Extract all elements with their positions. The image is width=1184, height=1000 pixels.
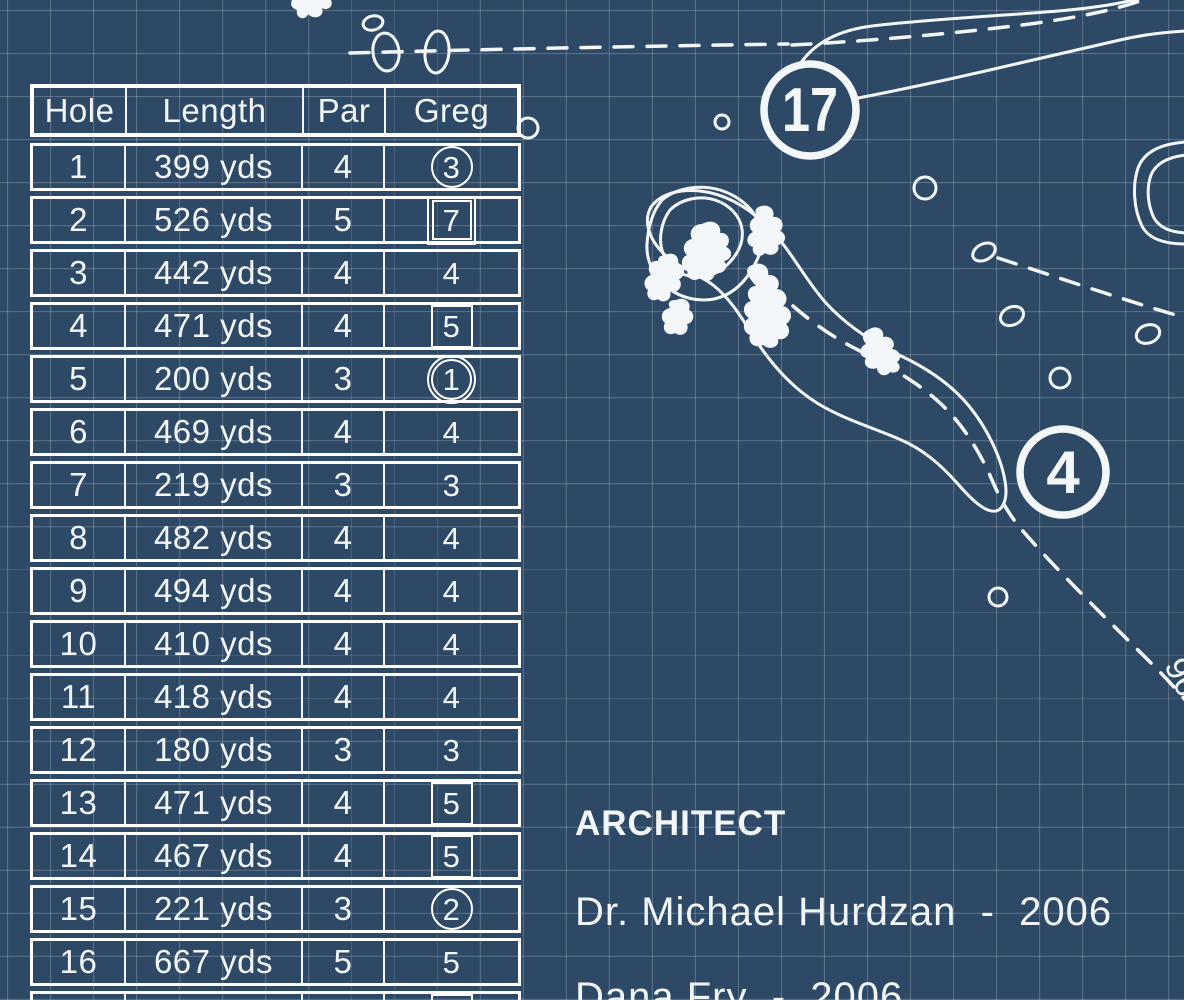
- table-row: 5 200 yds 3 1: [30, 355, 521, 403]
- mound: [518, 118, 538, 138]
- hole-par: 4: [301, 517, 383, 559]
- header-player: Greg: [384, 88, 517, 133]
- player-score-cell: [383, 994, 518, 1000]
- scorecard-table: Hole Length Par Greg 1 399 yds 4 3 2 526…: [30, 84, 521, 1000]
- bunker: [682, 222, 731, 281]
- table-row: 10 410 yds 4 4: [30, 620, 521, 668]
- header-par: Par: [302, 88, 384, 133]
- score-value: 4: [443, 629, 461, 660]
- header-hole: Hole: [34, 88, 125, 133]
- hole-length: 471 yds: [124, 305, 301, 347]
- table-row: 13 471 yds 4 5: [30, 779, 521, 827]
- table-row: 12 180 yds 3 3: [30, 726, 521, 774]
- hole-17-badge-label: 17: [782, 76, 838, 145]
- tee-line-17: [350, 44, 788, 53]
- hole-length: 667 yds: [124, 941, 301, 983]
- score-value: 3: [443, 470, 461, 501]
- blueprint-poster: 17 4 96 Hole Leng: [0, 0, 1184, 1000]
- score-mark: 4: [433, 571, 471, 611]
- score-value: 5: [443, 841, 461, 872]
- bunker: [662, 299, 694, 335]
- hole-number: 11: [33, 676, 124, 718]
- hole-par: 5: [301, 199, 383, 241]
- table-row: 2 526 yds 5 7: [30, 196, 521, 244]
- bunker: [744, 264, 791, 348]
- hole-par: 4: [301, 305, 383, 347]
- table-row: 9 494 yds 4 4: [30, 567, 521, 615]
- score-mark: 5: [433, 942, 471, 982]
- score-mark: 3: [431, 146, 473, 188]
- hole-number: 10: [33, 623, 124, 665]
- tee-mound: [362, 14, 385, 32]
- hole-length: 221 yds: [124, 888, 301, 930]
- hole-length: 418 yds: [124, 676, 301, 718]
- hole-length: 219 yds: [124, 464, 301, 506]
- yardage-label: 96: [1157, 652, 1184, 703]
- hole-par: 4: [301, 835, 383, 877]
- player-score-cell: 4: [383, 252, 518, 294]
- tee-box: [997, 303, 1026, 329]
- hole-length: 471 yds: [124, 782, 301, 824]
- hole-number: 3: [33, 252, 124, 294]
- architect-line: Dana Fry - 2006: [575, 973, 1112, 1000]
- header-length: Length: [125, 88, 302, 133]
- score-mark: 4: [433, 677, 471, 717]
- hole-length: 482 yds: [124, 517, 301, 559]
- score-value: 4: [443, 576, 461, 607]
- score-mark: 7: [427, 196, 476, 245]
- green-outline: [1148, 155, 1184, 233]
- score-mark: 2: [431, 888, 473, 930]
- score-value: 5: [443, 311, 461, 342]
- hole-length: 200 yds: [124, 358, 301, 400]
- score-mark: 3: [433, 730, 471, 770]
- table-row: 1 399 yds 4 3: [30, 143, 521, 191]
- hole-length: 410 yds: [124, 623, 301, 665]
- hole-par: 4: [301, 252, 383, 294]
- score-mark: 4: [433, 412, 471, 452]
- hole-number: 7: [33, 464, 124, 506]
- player-score-cell: 1: [383, 358, 518, 400]
- hole-par: 4: [301, 676, 383, 718]
- score-value: 4: [443, 682, 461, 713]
- player-score-cell: 2: [383, 888, 518, 930]
- tee-line: [998, 258, 1184, 318]
- tee-box: [970, 239, 999, 264]
- hole-number: 15: [33, 888, 124, 930]
- score-value: 3: [443, 735, 461, 766]
- player-score-cell: 3: [383, 729, 518, 771]
- table-row: 14 467 yds 4 5: [30, 832, 521, 880]
- hole-par: 5: [301, 941, 383, 983]
- table-header-row: Hole Length Par Greg: [30, 84, 521, 137]
- hole-par: [301, 994, 383, 1000]
- hole-number: 5: [33, 358, 124, 400]
- hole-number: 13: [33, 782, 124, 824]
- table-row: 15 221 yds 3 2: [30, 885, 521, 933]
- architect-heading: ARCHITECT: [575, 804, 1112, 844]
- table-row: 16 667 yds 5 5: [30, 938, 521, 986]
- hole-4-badge-label: 4: [1046, 439, 1080, 506]
- hole-par: 3: [301, 888, 383, 930]
- player-score-cell: 4: [383, 676, 518, 718]
- hole-number: [33, 994, 124, 1000]
- table-row: 3 442 yds 4 4: [30, 249, 521, 297]
- player-score-cell: 4: [383, 623, 518, 665]
- hole-length: 180 yds: [124, 729, 301, 771]
- tee-box: [1134, 321, 1163, 346]
- hole-number: 4: [33, 305, 124, 347]
- architect-line: Dr. Michael Hurdzan - 2006: [575, 888, 1112, 937]
- score-value: 2: [443, 894, 461, 925]
- score-mark: 5: [431, 305, 473, 348]
- player-score-cell: 4: [383, 570, 518, 612]
- score-value: 4: [443, 258, 461, 289]
- score-value: 4: [443, 523, 461, 554]
- score-mark: 3: [433, 465, 471, 505]
- center-line-4: [793, 306, 1184, 701]
- score-value: 4: [443, 417, 461, 448]
- hole-number: 2: [33, 199, 124, 241]
- hole-length: [124, 994, 301, 1000]
- hole-length: 467 yds: [124, 835, 301, 877]
- hole-number: 6: [33, 411, 124, 453]
- score-value: 5: [443, 947, 461, 978]
- hole-number: 1: [33, 146, 124, 188]
- hole-length: 399 yds: [124, 146, 301, 188]
- score-mark: 4: [433, 624, 471, 664]
- player-score-cell: 4: [383, 411, 518, 453]
- player-score-cell: 5: [383, 305, 518, 347]
- hole-number: 8: [33, 517, 124, 559]
- player-score-cell: 3: [383, 464, 518, 506]
- hole-length: 469 yds: [124, 411, 301, 453]
- hole-par: 3: [301, 729, 383, 771]
- score-value: 1: [443, 364, 461, 395]
- score-mark: 5: [431, 782, 473, 825]
- player-score-cell: 5: [383, 941, 518, 983]
- hole-par: 4: [301, 570, 383, 612]
- table-row: 8 482 yds 4 4: [30, 514, 521, 562]
- table-row: 4 471 yds 4 5: [30, 302, 521, 350]
- score-value: 3: [443, 152, 461, 183]
- player-score-cell: 5: [383, 835, 518, 877]
- hole-number: 12: [33, 729, 124, 771]
- table-row: 6 469 yds 4 4: [30, 408, 521, 456]
- score-mark: 5: [431, 835, 473, 878]
- hole-par: 4: [301, 146, 383, 188]
- hole-length: 526 yds: [124, 199, 301, 241]
- mound: [989, 588, 1007, 606]
- player-score-cell: 4: [383, 517, 518, 559]
- hole-par: 4: [301, 782, 383, 824]
- table-row: [30, 991, 521, 1000]
- player-score-cell: 7: [383, 199, 518, 241]
- bunker: [291, 0, 332, 18]
- upper-fairway-outline: [853, 31, 1184, 99]
- bunker: [860, 327, 900, 375]
- score-mark: 4: [433, 253, 471, 293]
- hole-number: 16: [33, 941, 124, 983]
- hole-par: 4: [301, 411, 383, 453]
- player-score-cell: 3: [383, 146, 518, 188]
- hole-number: 14: [33, 835, 124, 877]
- hole-length: 494 yds: [124, 570, 301, 612]
- score-mark: 1: [427, 355, 476, 404]
- mound: [914, 177, 936, 199]
- mound: [1050, 368, 1070, 388]
- architect-block: ARCHITECT Dr. Michael Hurdzan - 2006 Dan…: [575, 768, 1112, 1000]
- hole-number: 9: [33, 570, 124, 612]
- table-row: 7 219 yds 3 3: [30, 461, 521, 509]
- score-value: 7: [443, 205, 461, 236]
- mound: [715, 115, 729, 129]
- score-mark: 4: [433, 518, 471, 558]
- hole-par: 4: [301, 623, 383, 665]
- player-score-cell: 5: [383, 782, 518, 824]
- hole-par: 3: [301, 464, 383, 506]
- score-value: 5: [443, 788, 461, 819]
- hole-length: 442 yds: [124, 252, 301, 294]
- hole-par: 3: [301, 358, 383, 400]
- table-row: 11 418 yds 4 4: [30, 673, 521, 721]
- score-mark: [431, 994, 473, 1000]
